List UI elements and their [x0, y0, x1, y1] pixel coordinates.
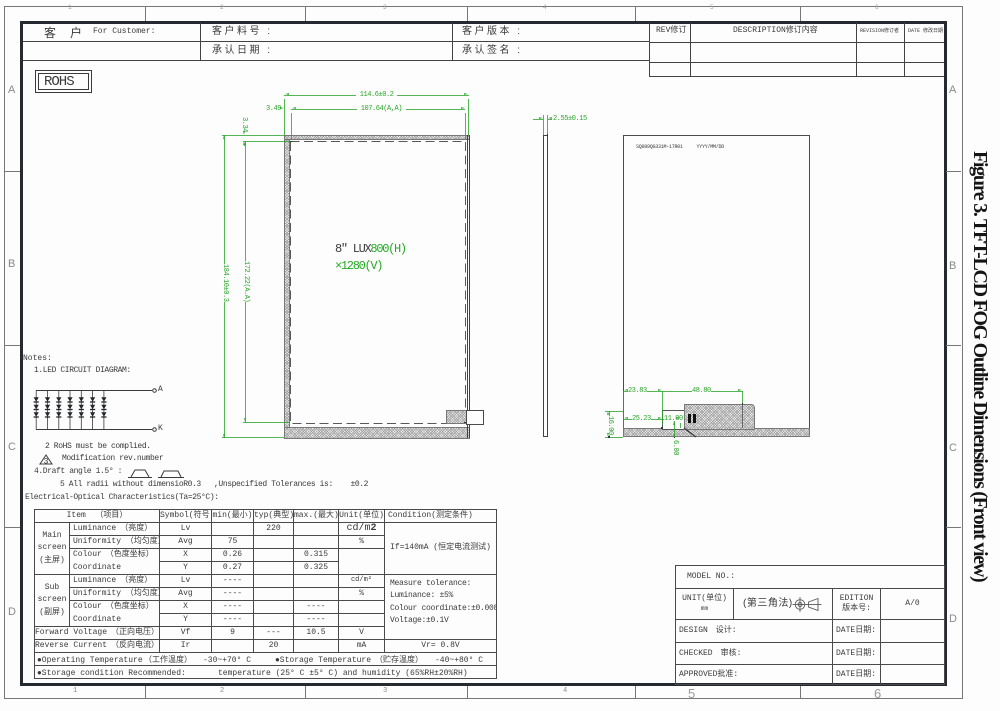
svg-text:3: 3 — [44, 458, 49, 466]
